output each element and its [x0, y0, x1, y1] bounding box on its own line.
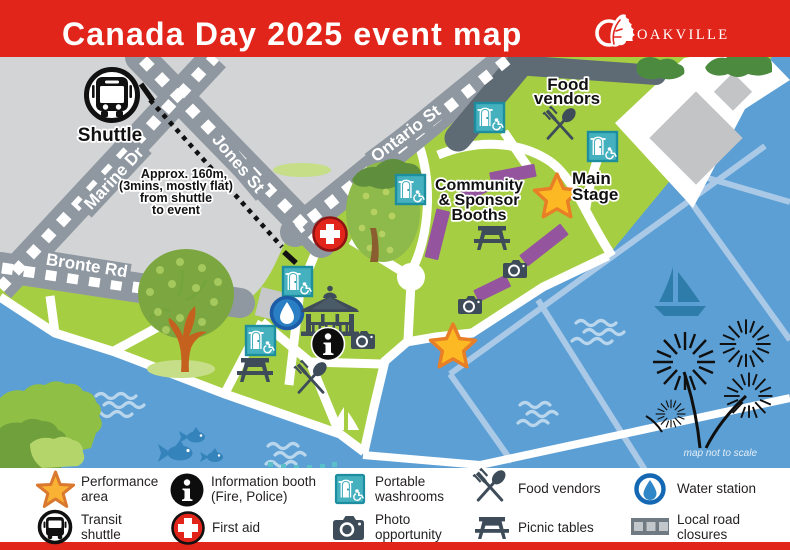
svg-text:opportunity: opportunity [375, 527, 442, 542]
svg-text:Canada Day 2025 event map: Canada Day 2025 event map [62, 16, 522, 52]
svg-text:shuttle: shuttle [81, 527, 121, 542]
svg-text:closures: closures [677, 527, 728, 542]
svg-text:Picnic tables: Picnic tables [518, 520, 594, 535]
svg-text:to event: to event [152, 203, 201, 217]
svg-text:washrooms: washrooms [374, 489, 444, 504]
svg-text:Local road: Local road [677, 512, 740, 527]
svg-text:Stage: Stage [572, 185, 618, 204]
svg-text:Water station: Water station [677, 481, 756, 496]
svg-text:Photo: Photo [375, 512, 410, 527]
svg-text:Transit: Transit [81, 512, 122, 527]
svg-text:Shuttle: Shuttle [78, 125, 142, 146]
svg-text:(Fire, Police): (Fire, Police) [211, 489, 288, 504]
svg-text:Food vendors: Food vendors [518, 481, 601, 496]
svg-text:First aid: First aid [212, 520, 260, 535]
svg-text:Booths: Booths [451, 207, 506, 224]
svg-text:map not to scale: map not to scale [684, 448, 758, 459]
svg-text:OAKVILLE: OAKVILLE [637, 27, 730, 43]
svg-text:Information booth: Information booth [211, 474, 316, 489]
svg-text:area: area [81, 489, 109, 504]
svg-text:Performance: Performance [81, 474, 158, 489]
svg-text:Portable: Portable [375, 474, 425, 489]
svg-text:vendors: vendors [534, 89, 600, 108]
